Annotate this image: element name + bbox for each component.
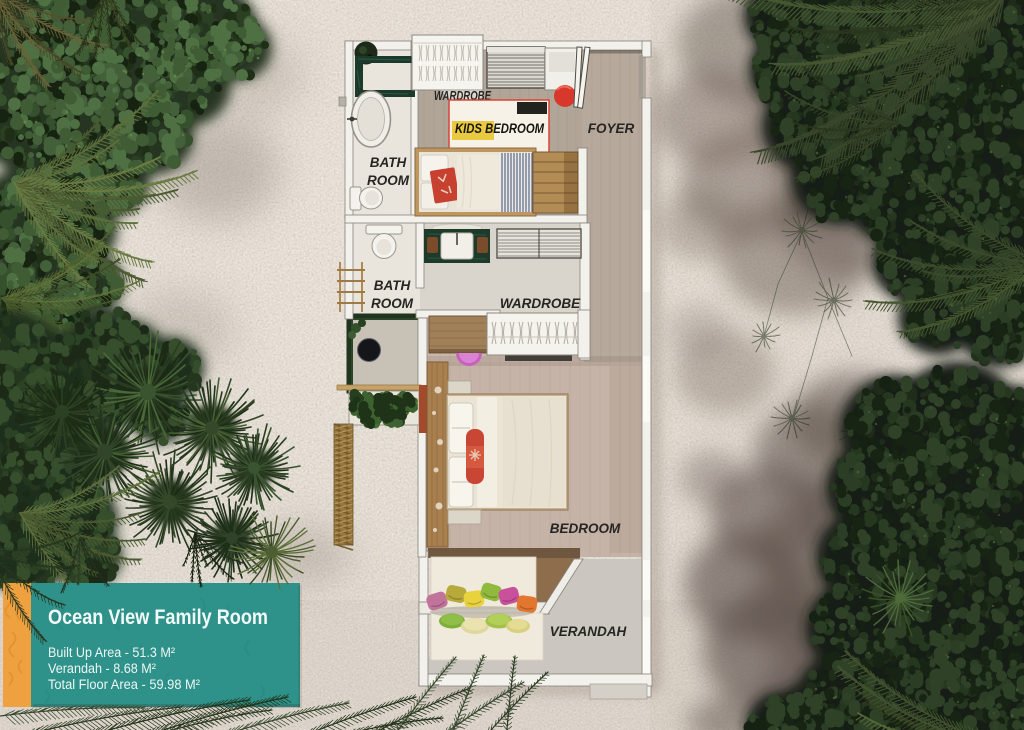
svg-text:FOYER: FOYER bbox=[588, 121, 635, 136]
svg-text:Total Floor Area - 59.98 M²: Total Floor Area - 59.98 M² bbox=[48, 677, 200, 692]
svg-text:WARDROBE: WARDROBE bbox=[500, 296, 581, 311]
svg-text:BEDROOM: BEDROOM bbox=[550, 521, 621, 536]
svg-text:ROOM: ROOM bbox=[371, 296, 414, 311]
svg-text:Ocean View Family Room: Ocean View Family Room bbox=[48, 606, 268, 629]
svg-text:Verandah - 8.68 M²: Verandah - 8.68 M² bbox=[48, 661, 156, 676]
svg-text:Built Up Area - 51.3 M²: Built Up Area - 51.3 M² bbox=[48, 645, 175, 660]
svg-text:ROOM: ROOM bbox=[367, 173, 410, 188]
svg-text:BATH: BATH bbox=[370, 155, 407, 170]
svg-text:KIDS BEDROOM: KIDS BEDROOM bbox=[455, 121, 545, 136]
svg-text:BATH: BATH bbox=[374, 278, 411, 293]
svg-text:VERANDAH: VERANDAH bbox=[550, 624, 627, 639]
